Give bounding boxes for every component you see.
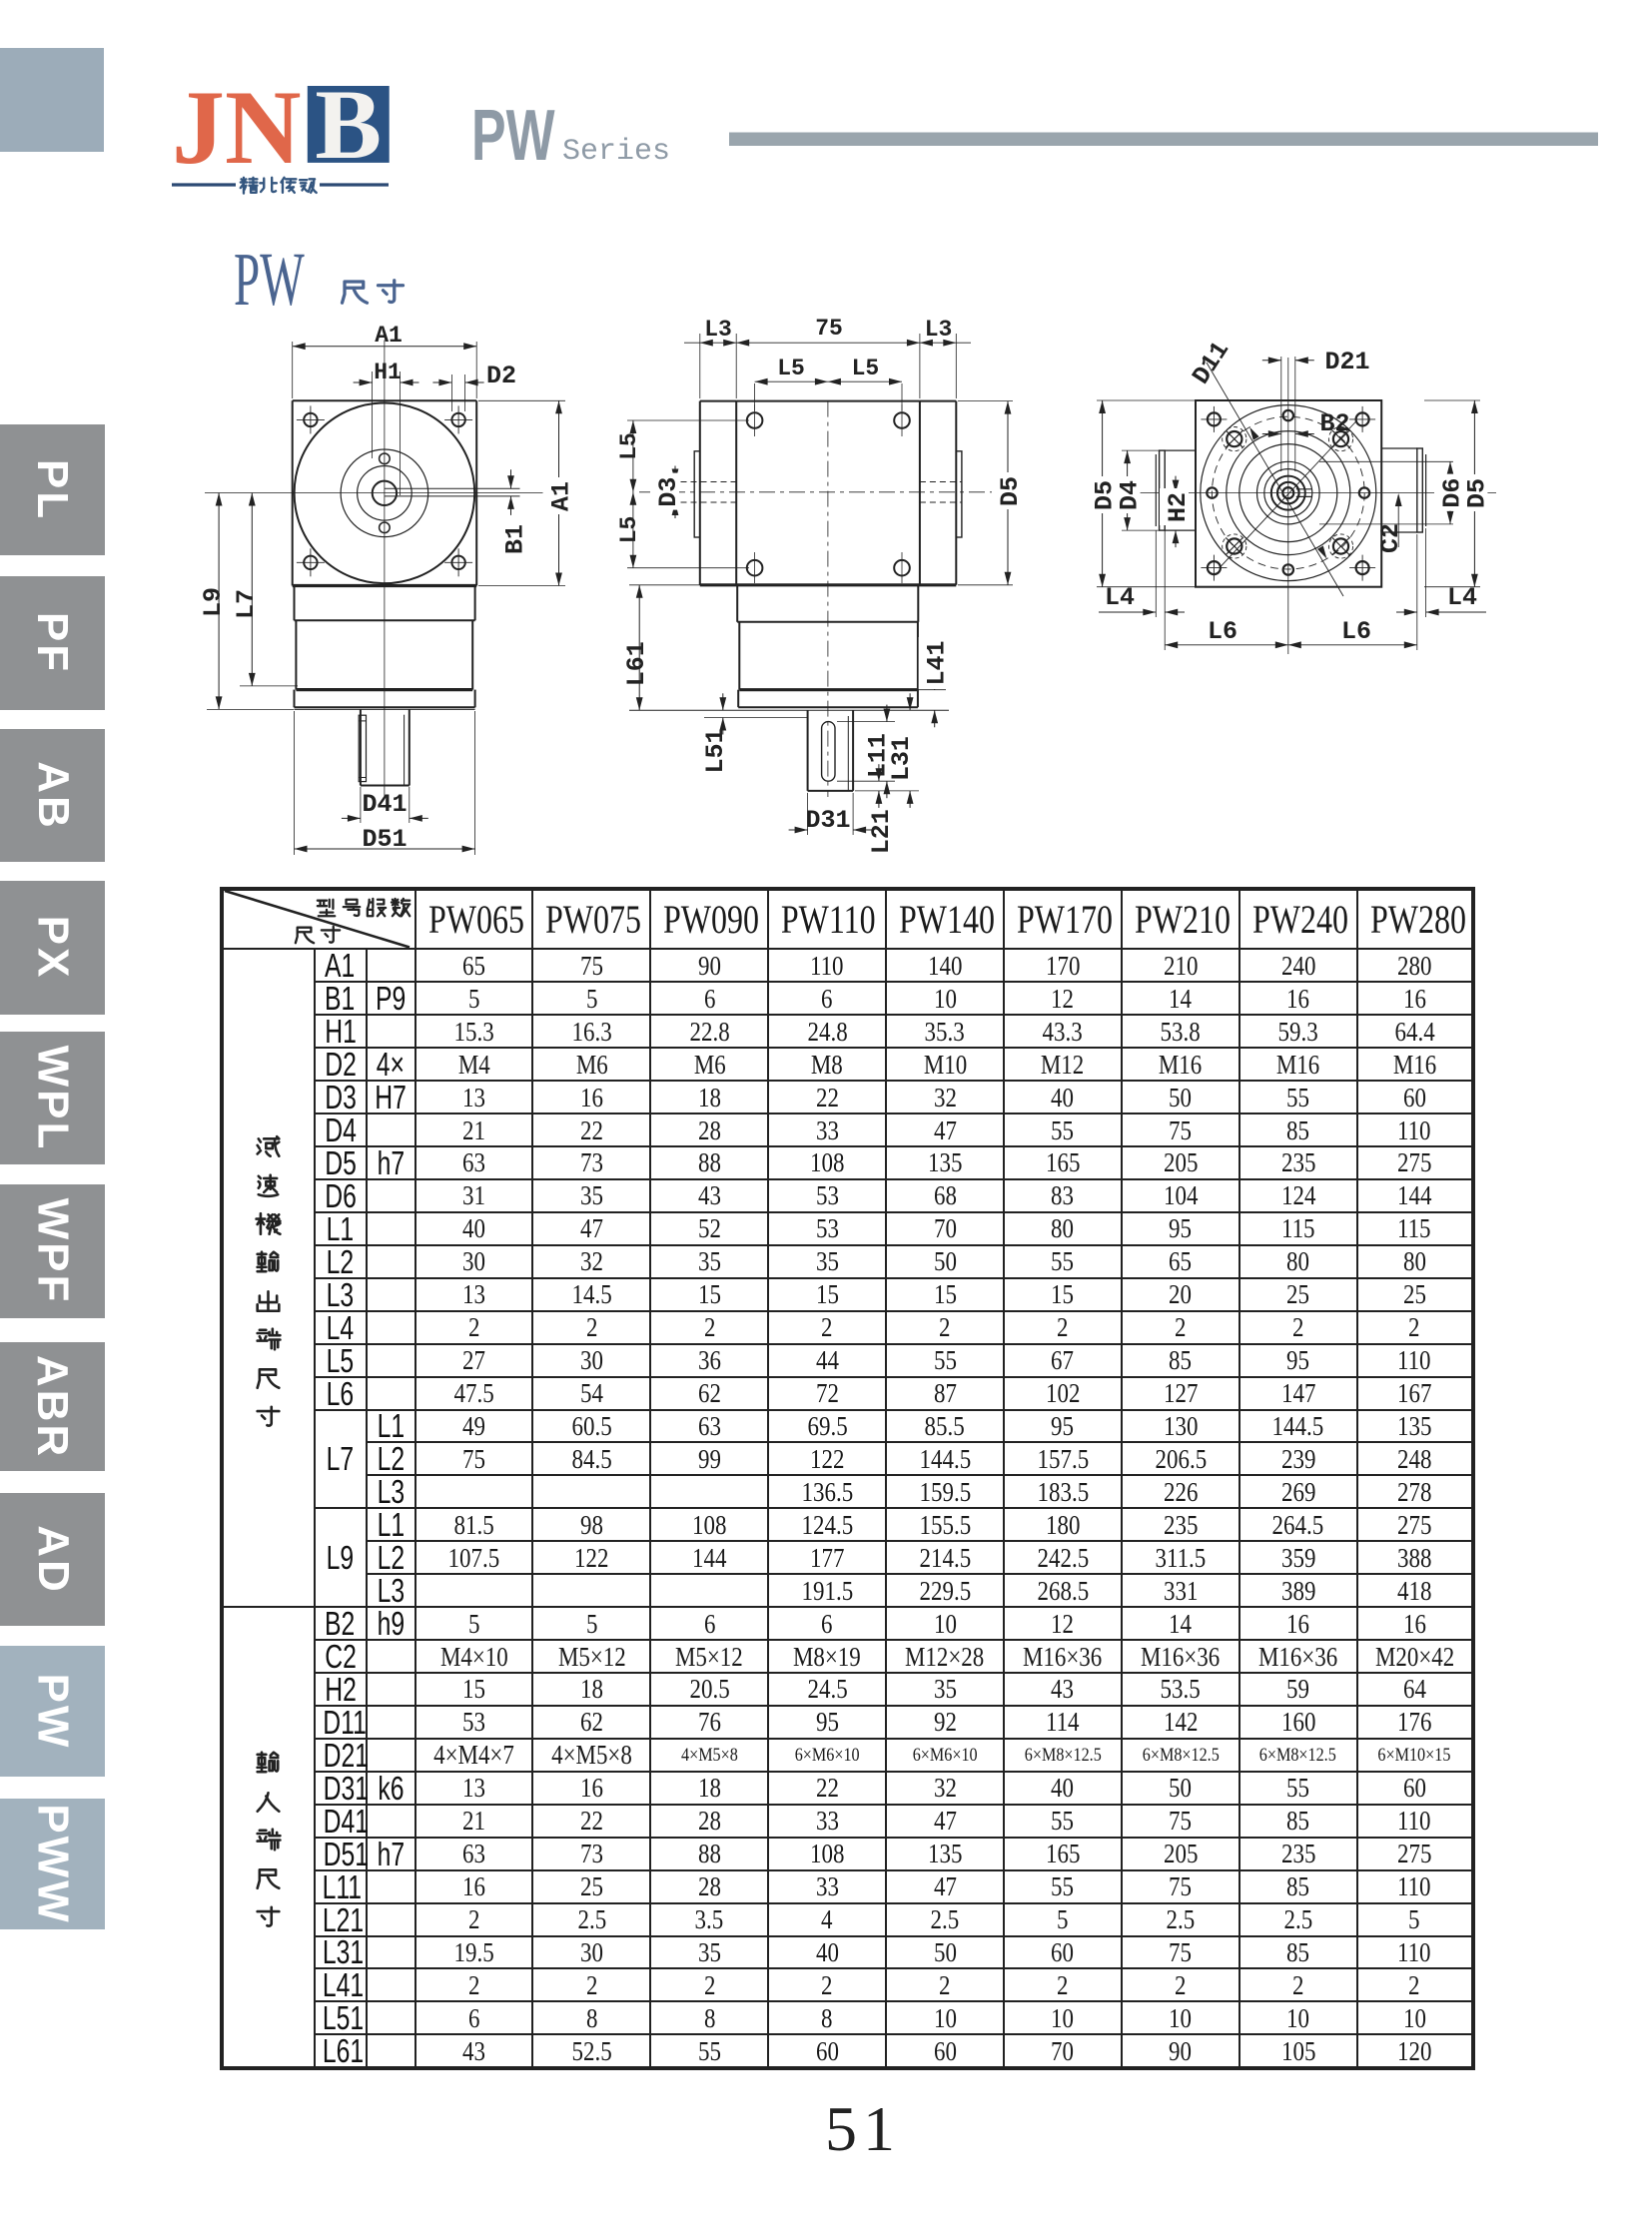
svg-text:A1: A1	[547, 481, 576, 511]
svg-text:JN: JN	[172, 69, 302, 186]
svg-text:A1: A1	[375, 323, 403, 349]
svg-text:C2: C2	[1376, 523, 1405, 553]
svg-text:L6: L6	[1208, 617, 1238, 646]
svg-text:D5: D5	[996, 476, 1025, 506]
svg-text:D21: D21	[1324, 348, 1369, 376]
svg-text:75: 75	[815, 316, 843, 342]
svg-text:L11: L11	[864, 733, 893, 778]
svg-text:L3: L3	[704, 317, 732, 343]
svg-text:L5: L5	[777, 356, 805, 381]
svg-text:L5: L5	[852, 356, 880, 381]
svg-text:H2: H2	[1164, 492, 1193, 522]
svg-text:L5: L5	[616, 516, 642, 544]
svg-text:51: 51	[825, 2093, 901, 2164]
svg-text:B1: B1	[501, 524, 530, 554]
svg-text:B: B	[315, 69, 382, 180]
svg-text:Series: Series	[562, 135, 670, 169]
svg-text:L51: L51	[701, 728, 730, 773]
svg-text:L21: L21	[867, 809, 896, 854]
svg-text:PW: PW	[234, 238, 305, 322]
svg-text:D4: D4	[1116, 480, 1145, 510]
svg-text:L9: L9	[199, 587, 228, 617]
svg-text:L5: L5	[616, 432, 642, 460]
svg-text:D31: D31	[805, 806, 850, 835]
svg-text:L7: L7	[232, 589, 261, 619]
svg-text:D5: D5	[1462, 478, 1491, 508]
svg-text:PW: PW	[471, 96, 555, 176]
svg-text:D41: D41	[362, 790, 407, 819]
svg-text:D3: D3	[654, 477, 683, 507]
svg-text:D5: D5	[1091, 480, 1120, 510]
svg-text:L4: L4	[1447, 583, 1477, 612]
svg-text:D11: D11	[1187, 337, 1236, 390]
svg-text:L31: L31	[887, 736, 916, 781]
svg-text:L61: L61	[622, 641, 651, 686]
svg-text:L4: L4	[1105, 583, 1135, 612]
svg-text:B2: B2	[1319, 409, 1349, 438]
svg-text:L6: L6	[1341, 617, 1371, 646]
svg-text:L41: L41	[923, 640, 952, 685]
svg-text:D2: D2	[486, 362, 516, 390]
svg-text:D51: D51	[362, 825, 407, 854]
svg-text:D6: D6	[1438, 478, 1467, 508]
svg-text:L3: L3	[925, 317, 953, 343]
svg-text:H1: H1	[374, 360, 402, 385]
